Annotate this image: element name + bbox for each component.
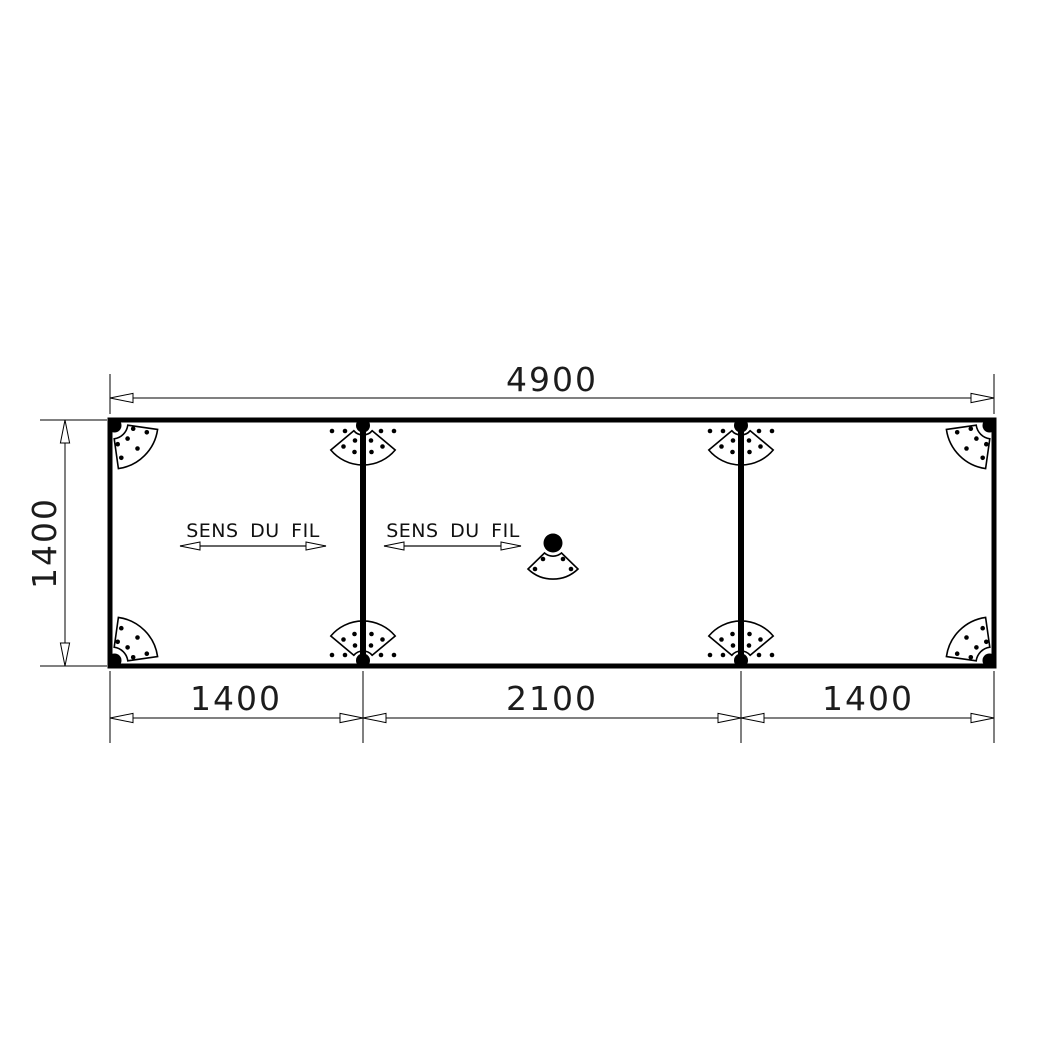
height-label: 1400 [25, 497, 64, 589]
arrowhead-bottom [60, 643, 69, 666]
grain-direction-annotation-left: SENS DU FIL [180, 520, 326, 550]
grain-direction-label: SENS DU FIL [186, 520, 320, 542]
panel-plan-drawing: 4900 1400 1400 2100 1400 SENS DU FIL SEN… [0, 0, 1044, 1043]
arrowhead-right [501, 542, 521, 550]
dimension-height: 1400 [25, 420, 107, 666]
center-leg-bracket [528, 534, 578, 580]
arrowhead-left [180, 542, 200, 550]
arrowhead [340, 713, 363, 722]
grain-direction-label: SENS DU FIL [386, 520, 520, 542]
arrowhead [110, 713, 133, 722]
arrowhead-left [110, 393, 133, 402]
dimension-overall-width: 4900 [110, 360, 994, 414]
arrowhead [718, 713, 741, 722]
arrowhead-top [60, 420, 69, 443]
section-width-label-1: 1400 [190, 679, 282, 718]
overall-width-label: 4900 [506, 360, 598, 399]
section-width-label-3: 1400 [822, 679, 914, 718]
corner-bracket-top-left [108, 419, 158, 469]
arrowhead [741, 713, 764, 722]
corner-bracket-bottom-right [946, 617, 996, 667]
arrowhead-right [306, 542, 326, 550]
section-width-label-2: 2100 [506, 679, 598, 718]
corner-bracket-bottom-left [108, 617, 158, 667]
arrowhead-left [384, 542, 404, 550]
dimension-sections: 1400 2100 1400 [110, 671, 994, 743]
arrowhead-right [971, 393, 994, 402]
arrowhead [363, 713, 386, 722]
grain-direction-annotation-center: SENS DU FIL [384, 520, 521, 550]
arrowhead [971, 713, 994, 722]
corner-bracket-top-right [946, 419, 996, 469]
drawing-canvas: 4900 1400 1400 2100 1400 SENS DU FIL SEN… [0, 0, 1044, 1043]
